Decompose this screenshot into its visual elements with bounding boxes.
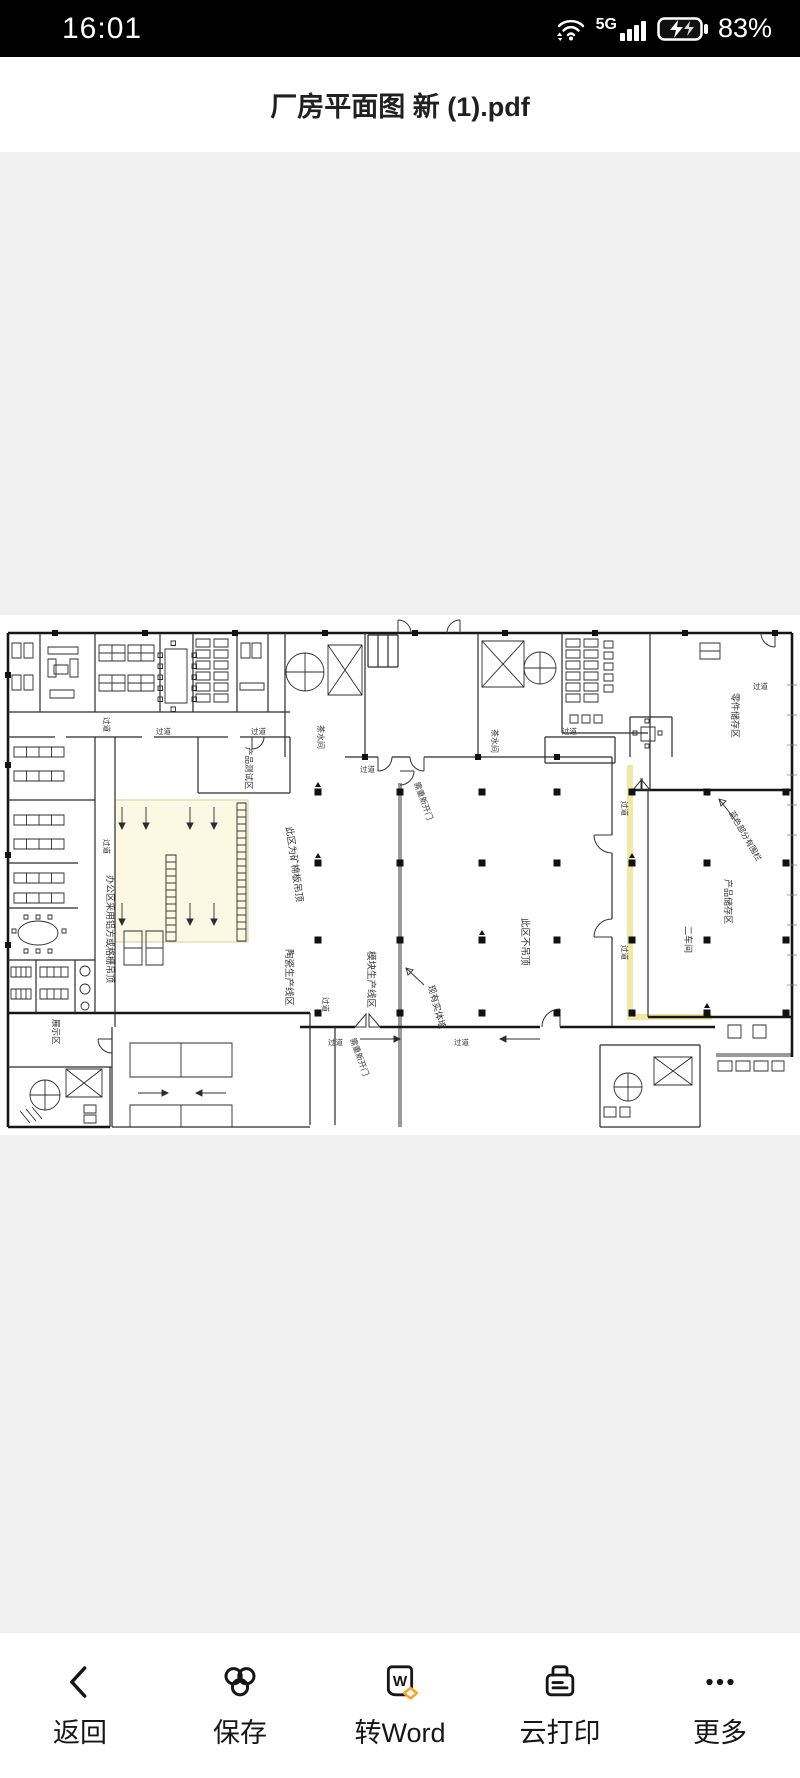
svg-text:W: W [393,1673,408,1690]
plan-label: 过道 [102,839,112,854]
plan-label: 陶瓷生产线区 [283,949,295,1007]
plan-label: 过道 [620,801,630,816]
plan-label: 过道 [562,726,577,736]
back-label: 返回 [53,1711,107,1750]
printer-icon [539,1661,581,1703]
production-line-highlight-zone [115,800,248,942]
signal-5g-icon: 5G [596,15,648,43]
plan-label: 过道 [454,1037,469,1047]
plan-label: 过道 [753,681,768,691]
plan-label: 过道 [156,726,171,736]
plan-label: 零件储存区 [730,693,741,738]
plan-label: 展示区 [51,1019,61,1045]
status-icons: 5G 83% [555,13,772,44]
cloud-print-button[interactable]: 云打印 [490,1661,630,1750]
pdf-viewer[interactable]: 过道过道过道过道过道过道过道产品测试区茶水间茶水间需重新开门此区为矿棉板吊顶陶瓷… [0,152,800,1633]
plan-label: 产品测试区 [244,747,254,790]
chevron-left-icon [59,1661,101,1703]
trefoil-rings-icon [219,1661,261,1703]
back-button[interactable]: 返回 [10,1661,150,1750]
plan-label: 此区不吊顶 [519,918,531,966]
convert-to-word-label: 转Word [354,1711,445,1750]
plan-label: 模块生产线区 [365,951,377,1009]
battery-percent: 83% [718,13,772,44]
clock: 16:01 [62,12,142,46]
network-type: 5G [596,16,617,34]
word-document-icon: W [379,1661,421,1703]
plan-label: 产品储存区 [723,879,734,924]
plan-label: 过道 [251,726,266,736]
pdf-page-floor-plan[interactable]: 过道过道过道过道过道过道过道产品测试区茶水间茶水间需重新开门此区为矿棉板吊顶陶瓷… [0,615,800,1135]
ellipsis-icon [699,1661,741,1703]
cloud-print-label: 云打印 [520,1711,601,1750]
document-title-bar: 厂房平面图 新 (1).pdf [0,57,800,152]
plan-label: 过道 [620,945,630,960]
save-label: 保存 [213,1711,267,1750]
convert-to-word-button[interactable]: W 转Word [330,1661,470,1750]
plan-label: 过道 [360,764,375,774]
document-filename: 厂房平面图 新 (1).pdf [270,85,529,124]
plan-label: 茶水间 [490,729,500,753]
more-button[interactable]: 更多 [650,1661,790,1750]
plan-label: 过道 [102,717,112,732]
plan-label: 二车间 [683,926,694,953]
bottom-toolbar: 返回 保存 W 转Word 云打印 [0,1632,800,1778]
plan-label: 过道 [328,1037,343,1047]
more-label: 更多 [693,1711,747,1750]
plan-label: 茶水间 [316,725,326,749]
plan-label: 办公区采用铝方或格栅吊顶 [105,875,116,983]
battery-charging-icon [657,15,709,43]
plan-label: 过道 [321,997,331,1012]
status-bar: 16:01 5G [0,0,800,57]
save-button[interactable]: 保存 [170,1661,310,1750]
wifi-icon [555,15,587,43]
